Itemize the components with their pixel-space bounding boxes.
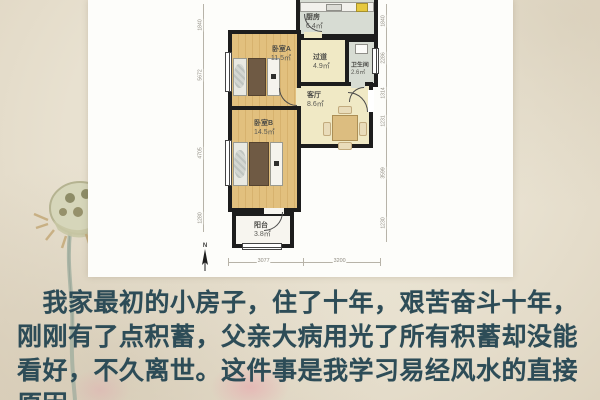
dim-label: 4705 — [198, 146, 203, 159]
dim-label: 1231 — [381, 114, 386, 127]
bed-b-blanket — [249, 142, 269, 186]
room-area: 14.5㎡ — [254, 129, 275, 138]
caption-line-2: 刚刚有了点积蓄，父亲大病用光了所有积蓄却没能 — [17, 320, 588, 354]
room-area: 3.8㎡ — [254, 231, 271, 240]
room-area: 11.5㎡ — [271, 55, 291, 64]
dining-table-set — [323, 106, 367, 150]
window-bedroom-a — [225, 52, 232, 92]
door-gap-entry — [368, 90, 374, 112]
window-bathroom — [372, 48, 379, 74]
dining-table-icon — [332, 115, 358, 141]
dim-label: 2286 — [381, 51, 386, 64]
caption-line-4: 原因 — [17, 388, 588, 400]
dim-label: 3200 — [333, 258, 347, 263]
dim-label: 1280 — [198, 211, 203, 224]
kitchen-sink-icon — [326, 4, 342, 11]
floorplan-canvas: 厨房 6.4㎡ 卧室A 11.5㎡ 过道 4.9㎡ — [88, 0, 513, 277]
room-label: 过道 — [313, 54, 327, 61]
room-area: 4.9㎡ — [313, 63, 330, 72]
dim-tick — [303, 258, 304, 266]
dim-label: 3599 — [381, 166, 386, 179]
room-hallway: 过道 4.9㎡ — [297, 36, 349, 86]
bathroom-sink-icon — [355, 44, 368, 54]
north-arrow: N — [196, 243, 214, 275]
caption-line-3: 看好，不久离世。这件事是我学习易经风水的直接 — [17, 354, 588, 388]
dim-label: 1314 — [381, 86, 386, 99]
dim-label: 1840 — [198, 18, 203, 31]
room-label: 卫生间 — [351, 62, 369, 68]
room-label: 卧室B — [254, 120, 273, 127]
chair-icon — [359, 122, 367, 136]
chair-icon — [338, 142, 352, 150]
room-label: 卧室A — [272, 46, 291, 53]
dim-tick — [380, 258, 381, 266]
dim-label: 5672 — [198, 68, 203, 81]
room-area: 8.6㎡ — [307, 101, 324, 110]
room-bedroom-b: 卧室B 14.5㎡ — [228, 106, 301, 212]
caption-line-1: 我家最初的小房子，住了十年，艰苦奋斗十年， — [17, 286, 588, 320]
bed-a-pillow — [234, 64, 245, 88]
caption-text: 我家最初的小房子，住了十年，艰苦奋斗十年， 刚刚有了点积蓄，父亲大病用光了所有积… — [0, 286, 600, 400]
dim-line-bottom — [228, 262, 380, 263]
dim-label: 1230 — [381, 216, 386, 229]
dim-label: 1840 — [381, 14, 386, 27]
dim-tick — [228, 258, 229, 266]
door-gap-kitchen — [304, 32, 322, 38]
window-balcony — [242, 243, 282, 250]
wardrobe-b-knob — [274, 161, 279, 166]
room-label: 客厅 — [307, 92, 321, 99]
wardrobe-a-knob — [271, 74, 276, 79]
dim-line-left — [203, 4, 204, 232]
room-area: 2.6㎡ — [351, 69, 369, 76]
bed-a-blanket — [248, 58, 266, 96]
dim-label: 3077 — [257, 258, 271, 263]
bed-b-pillow — [234, 150, 246, 178]
compass-needle-icon — [199, 249, 211, 271]
kitchen-stove-icon — [356, 3, 368, 12]
window-bedroom-b — [225, 140, 232, 186]
chair-icon — [323, 122, 331, 136]
article-image: 厨房 6.4㎡ 卧室A 11.5㎡ 过道 4.9㎡ — [0, 0, 600, 400]
